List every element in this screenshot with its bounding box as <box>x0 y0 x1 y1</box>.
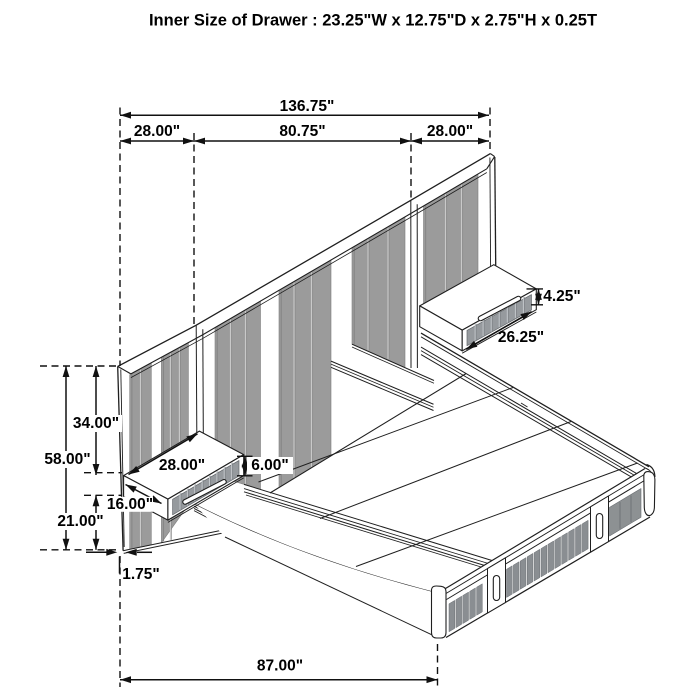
svg-text:136.75": 136.75" <box>280 98 335 115</box>
svg-text:Inner Size of Drawer : 23.25"W: Inner Size of Drawer : 23.25"W x 12.75"D… <box>149 12 597 30</box>
svg-text:16.00": 16.00" <box>107 496 153 513</box>
svg-text:34.00": 34.00" <box>73 415 119 432</box>
svg-text:21.00": 21.00" <box>57 513 103 530</box>
svg-text:4.25": 4.25" <box>543 288 581 305</box>
svg-text:26.25": 26.25" <box>498 329 544 346</box>
svg-text:87.00": 87.00" <box>257 658 303 675</box>
svg-text:58.00": 58.00" <box>44 451 90 468</box>
svg-text:28.00": 28.00" <box>427 123 473 140</box>
svg-text:28.00": 28.00" <box>159 457 205 474</box>
svg-text:28.00": 28.00" <box>134 123 180 140</box>
svg-text:80.75": 80.75" <box>279 123 325 140</box>
svg-text:6.00": 6.00" <box>251 457 289 474</box>
svg-text:1.75": 1.75" <box>122 566 160 583</box>
